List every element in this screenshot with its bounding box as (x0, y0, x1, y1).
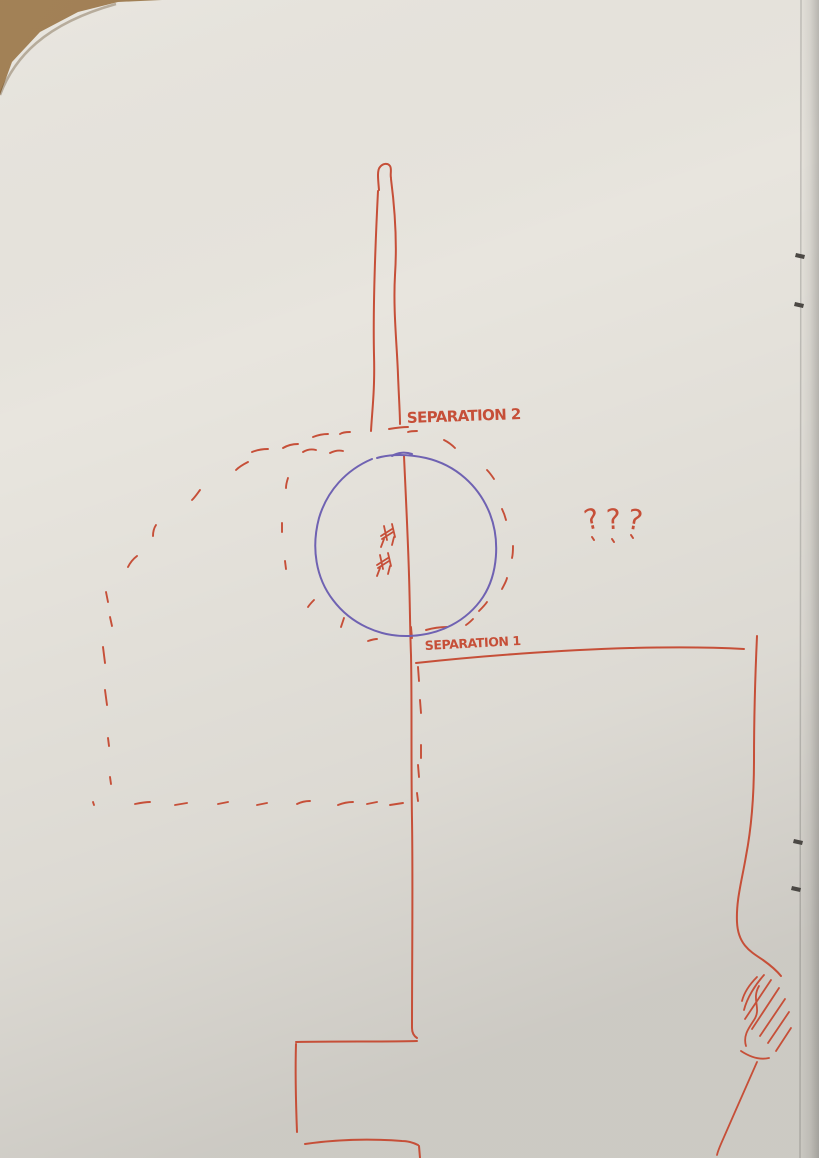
dash-mark (285, 561, 286, 569)
page-fold-line (800, 0, 801, 1158)
dash-mark (408, 431, 417, 432)
bottom-step-top (296, 1041, 417, 1042)
dash-mark (108, 738, 109, 746)
notebook-photo: SEPARATION 2 SEPARATION 1 ??? (0, 0, 819, 1158)
dash-mark (110, 777, 111, 784)
bottom-step-stub (419, 1146, 420, 1158)
question-marks-label: ??? (581, 498, 652, 542)
dash-mark (512, 546, 513, 558)
dash-mark (418, 667, 419, 681)
dash-mark (417, 793, 418, 801)
sketch-photo-svg: SEPARATION 2 SEPARATION 1 ??? (0, 0, 819, 1158)
dash-mark (420, 700, 421, 713)
page-edge-shadow (799, 0, 819, 1158)
dash-mark (418, 765, 419, 777)
dash-mark (93, 802, 94, 805)
